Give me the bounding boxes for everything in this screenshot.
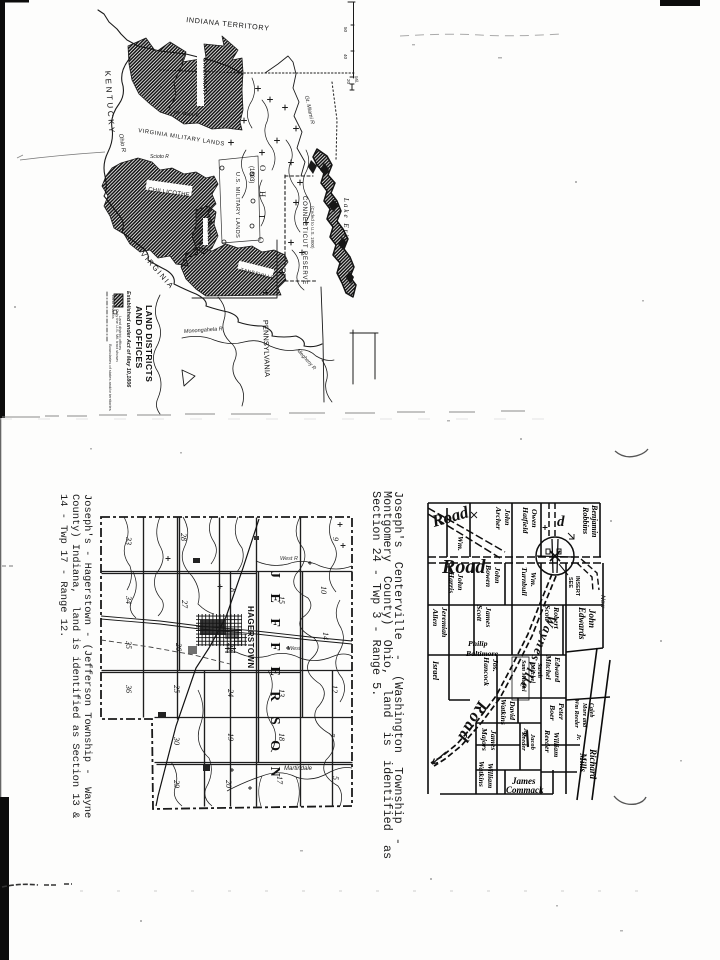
svg-text:Ohio R: Ohio R	[117, 133, 126, 153]
svg-text:12: 12	[330, 685, 339, 693]
svg-text:More and: More and	[581, 702, 587, 728]
svg-text:Jr.: Jr.	[575, 733, 581, 741]
svg-text:(Ceded to U.S. 1800): (Ceded to U.S. 1800)	[310, 206, 315, 249]
svg-text:24: 24	[226, 689, 235, 697]
svg-text:John: John	[503, 508, 512, 525]
svg-text:33: 33	[124, 536, 133, 545]
svg-text:Mitchel: Mitchel	[529, 663, 535, 683]
svg-text:Caleb: Caleb	[588, 703, 594, 717]
svg-text:Philip: Philip	[468, 639, 488, 648]
svg-text:HAGERSTOWN: HAGERSTOWN	[246, 606, 255, 669]
svg-text:Watkins: Watkins	[499, 699, 508, 725]
svg-text:O: O	[258, 165, 268, 171]
svg-text:Scott: Scott	[475, 605, 484, 622]
svg-text:Mitchel: Mitchel	[544, 654, 553, 681]
svg-text:Richard: Richard	[588, 748, 598, 780]
svg-text:20: 20	[224, 780, 233, 788]
svg-text:William: William	[552, 732, 561, 757]
svg-text:Peter: Peter	[557, 703, 566, 721]
svg-text:Allen: Allen	[431, 608, 440, 626]
svg-text:d: d	[557, 514, 565, 530]
svg-text:Boer: Boer	[548, 704, 557, 722]
svg-text:18: 18	[277, 733, 286, 741]
svg-text:Bowen: Bowen	[484, 564, 493, 587]
svg-text:25: 25	[172, 685, 181, 693]
svg-text:James: James	[484, 606, 493, 627]
svg-text:Turnbull: Turnbull	[520, 567, 529, 597]
svg-text:Hancock: Hancock	[482, 656, 491, 686]
svg-text:Robbins: Robbins	[581, 506, 590, 534]
svg-text:I: I	[257, 215, 267, 218]
svg-text:County) Indiana, land is iden: County) Indiana, land is identified as S…	[69, 494, 81, 819]
svg-text:John: John	[493, 566, 502, 583]
svg-text:Gt. Miami R: Gt. Miami R	[303, 95, 315, 125]
svg-text:INDIANA TERRITORY: INDIANA TERRITORY	[186, 15, 270, 33]
svg-text:26: 26	[174, 643, 183, 651]
svg-text:Mil.: Mil.	[354, 76, 359, 83]
svg-text:Land district offices: Land district offices	[118, 316, 123, 350]
svg-text:Wm.: Wm.	[529, 572, 538, 587]
svg-text:Wm Reeder: Wm Reeder	[573, 699, 579, 728]
svg-text:John: John	[456, 573, 465, 590]
svg-text:Hatfield: Hatfield	[521, 506, 530, 534]
svg-text:17: 17	[275, 776, 284, 785]
svg-text:19: 19	[226, 733, 235, 741]
svg-text:PENNSYLVANIA: PENNSYLVANIA	[261, 320, 272, 378]
svg-text:Established under Act of May 1: Established under Act of May 10,1806	[125, 291, 131, 388]
svg-text:Commack: Commack	[506, 785, 544, 795]
svg-text:10: 10	[319, 586, 328, 594]
svg-text:CONNECTICUT RESERVE: CONNECTICUT RESERVE	[301, 196, 307, 285]
svg-text:Wm.: Wm.	[456, 536, 465, 551]
svg-text:AND OFFICES: AND OFFICES	[134, 306, 144, 369]
svg-text:West R: West R	[280, 556, 298, 562]
svg-text:Sam Mitchel: Sam Mitchel	[520, 660, 526, 692]
svg-text:Israel: Israel	[431, 660, 440, 681]
svg-text:Reeder: Reeder	[520, 731, 527, 751]
svg-text:5: 5	[331, 776, 340, 780]
svg-text:Scioto R: Scioto R	[150, 154, 169, 160]
svg-text:Watkins: Watkins	[477, 761, 486, 787]
svg-text:(1803): (1803)	[248, 166, 254, 183]
svg-text:VIRGINIA MILITARY LANDS: VIRGINIA MILITARY LANDS	[138, 128, 225, 148]
svg-text:INSERT: INSERT	[574, 576, 580, 597]
svg-text:SEE: SEE	[567, 577, 573, 588]
svg-text:Edwards: Edwards	[577, 606, 587, 640]
svg-text:Mills: Mills	[578, 752, 588, 773]
svg-text:Section 24 - Twp 3 - Range 5.: Section 24 - Twp 3 - Range 5.	[369, 491, 383, 696]
svg-text:14 - Twp 17 - Range 12.: 14 - Twp 17 - Range 12.	[57, 494, 69, 637]
svg-text:William: William	[486, 763, 495, 788]
svg-text:Scott: Scott	[543, 605, 552, 622]
svg-text:50: 50	[343, 27, 348, 33]
svg-text:Martindale: Martindale	[284, 766, 313, 772]
svg-text:Joseph's - Hagerstown - (Jeffe: Joseph's - Hagerstown - (Jefferson Towns…	[81, 494, 93, 818]
svg-text:23: 23	[226, 643, 235, 651]
svg-text:29: 29	[172, 780, 181, 788]
svg-text:Baltimore: Baltimore	[465, 649, 499, 658]
svg-text:35: 35	[124, 640, 133, 649]
svg-text:Majors: Majors	[480, 727, 489, 751]
svg-text:8: 8	[228, 588, 237, 592]
svg-text:KENTUCKY: KENTUCKY	[103, 71, 116, 136]
svg-text:40: 40	[343, 54, 348, 60]
svg-text:Jos.: Jos.	[491, 658, 500, 672]
svg-text:Robert: Robert	[552, 606, 561, 629]
svg-text:JEFFERSON: JEFFERSON	[267, 571, 282, 792]
svg-text:27: 27	[180, 600, 189, 609]
svg-text:13: 13	[277, 689, 286, 697]
svg-text:34: 34	[124, 595, 133, 604]
svg-text:Lake Erie: Lake Erie	[342, 197, 350, 243]
svg-text:John: John	[587, 608, 597, 628]
svg-text:28: 28	[179, 533, 188, 541]
svg-text:Owen: Owen	[530, 509, 539, 528]
svg-text:U.S. MILITARY LANDS: U.S. MILITARY LANDS	[234, 172, 240, 238]
svg-text:36: 36	[124, 684, 133, 693]
svg-text:West: West	[288, 646, 301, 652]
svg-text:Jacob: Jacob	[529, 733, 536, 751]
svg-text:James: James	[489, 729, 498, 750]
svg-text:Monongahela R.: Monongahela R.	[184, 326, 225, 335]
svg-text:Benjamin: Benjamin	[590, 504, 599, 538]
svg-text:Boundaries of states and/or te: Boundaries of states and/or territories	[108, 344, 113, 411]
svg-text:Reeder: Reeder	[543, 729, 552, 753]
svg-text:Edward: Edward	[553, 656, 562, 682]
svg-text:Harris: Harris	[447, 571, 456, 593]
svg-text:LAND DISTRICTS: LAND DISTRICTS	[144, 305, 154, 382]
svg-text:14: 14	[321, 632, 330, 640]
svg-text:15: 15	[277, 596, 286, 604]
svg-text:Archer: Archer	[494, 506, 503, 530]
svg-text:Sarah: Sarah	[536, 663, 542, 679]
svg-text:7: 7	[327, 733, 336, 738]
svg-text:9: 9	[331, 537, 340, 541]
svg-text:David: David	[508, 700, 517, 720]
svg-text:30: 30	[172, 736, 181, 745]
svg-text:MARIETTA: MARIETTA	[207, 218, 212, 242]
svg-text:Now: Now	[599, 595, 606, 609]
svg-text:CINCINNATI: CINCINNATI	[201, 58, 207, 95]
svg-text:O: O	[256, 237, 266, 243]
svg-text:Jeremiah: Jeremiah	[440, 606, 449, 637]
